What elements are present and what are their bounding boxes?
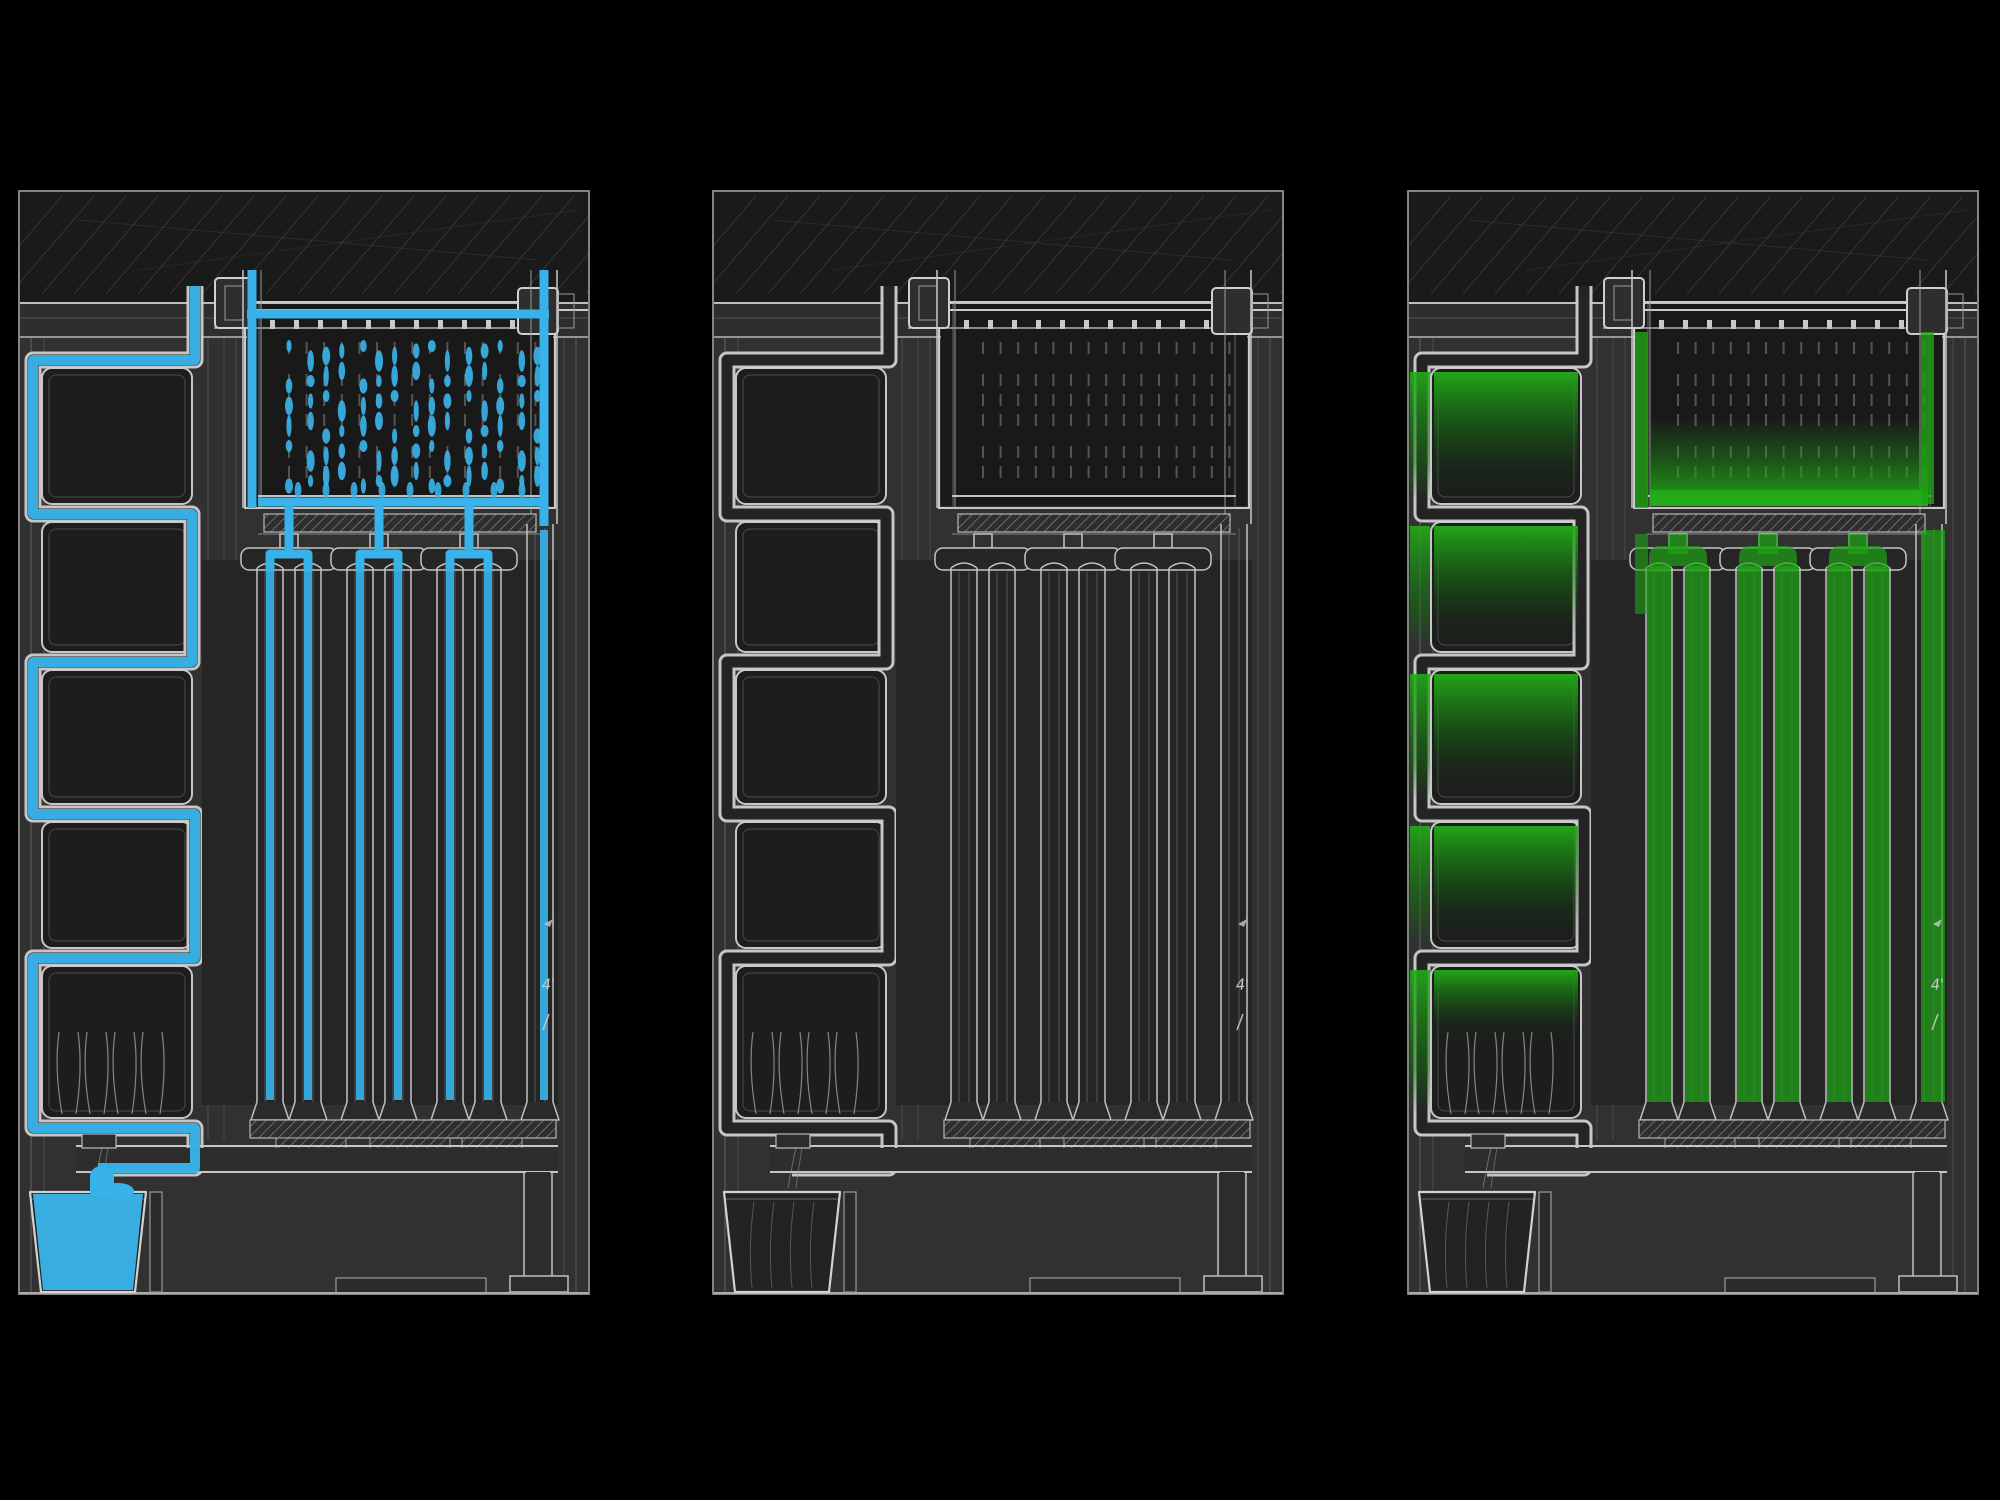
- section-drawing-plain: 4': [712, 190, 1284, 1295]
- dimension-annotation: 4': [1930, 975, 1945, 994]
- triptych: 4' 4' 4': [0, 0, 2000, 1500]
- section-drawing-water: 4': [18, 190, 590, 1295]
- panel-algae-growth: 4': [1407, 190, 1979, 1295]
- panel-base-drawing: 4': [712, 190, 1284, 1295]
- panel-water-flow: 4': [18, 190, 590, 1295]
- dimension-annotation: 4': [1235, 975, 1250, 994]
- section-drawing-algae: 4': [1407, 190, 1979, 1295]
- dimension-annotation: 4': [541, 975, 556, 994]
